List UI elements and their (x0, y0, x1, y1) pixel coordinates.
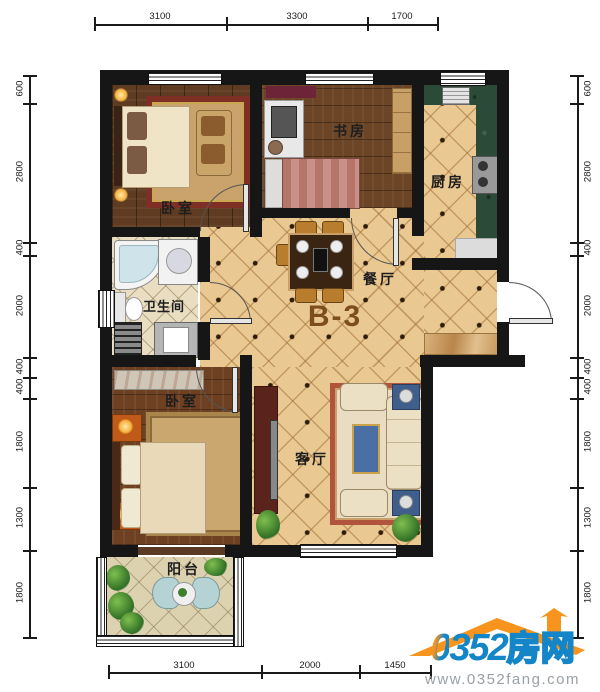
dim-label-right: 2800 (583, 152, 594, 192)
dim-tick (570, 487, 584, 489)
plant-icon (256, 510, 280, 540)
stove-burner (478, 161, 488, 171)
coffee-table (352, 424, 380, 474)
dim-tick (23, 487, 37, 489)
room-label-study: 书房 (310, 121, 390, 141)
room-label-dining: 餐厅 (344, 269, 416, 289)
wall-bottom-seg (395, 545, 433, 557)
balcony-glazing-right (233, 557, 244, 647)
dim-label-top: 1700 (372, 11, 432, 22)
sofa-loveseat (340, 489, 388, 517)
lamp-icon (399, 495, 413, 509)
room-label-kitchen: 厨房 (412, 172, 484, 192)
entry-door-arc (509, 282, 552, 323)
dim-label-left: 1800 (15, 573, 26, 613)
table-centerpiece (313, 248, 328, 272)
radiator-icon (114, 322, 142, 356)
bedroom-bottom-door-leaf (232, 367, 238, 413)
dim-tick (23, 550, 37, 552)
dim-label-left: 600 (15, 69, 26, 109)
wall-entry-spur (420, 355, 525, 367)
dim-tick (437, 17, 439, 31)
dim-label-bottom: 2000 (280, 660, 340, 671)
wall-kitchen-left (412, 85, 424, 236)
plate (296, 240, 309, 253)
dim-label-right: 1800 (583, 422, 594, 462)
study-shelf (266, 86, 316, 98)
wall-bedroom-top-bottom (100, 227, 200, 237)
watermark-logo: 0352房网 www.0352fang.com (405, 608, 600, 692)
room-label-living: 客厅 (276, 449, 348, 469)
study-wardrobe (392, 88, 412, 174)
plate (330, 266, 343, 279)
study-door-leaf (393, 218, 399, 266)
computer-monitor-icon (271, 106, 297, 138)
balcony-table-plant (178, 588, 187, 597)
dim-line-top (94, 24, 438, 26)
plate (296, 266, 309, 279)
room-label-bathroom: 卫生间 (126, 296, 202, 315)
wall-bedroom-study (250, 85, 262, 237)
bench-cushion (201, 144, 225, 164)
dim-label-left: 400 (15, 228, 26, 268)
dim-tick (261, 665, 263, 679)
dim-line-bottom (108, 672, 431, 674)
watermark-url: www.0352fang.com (405, 671, 600, 688)
study-bed (282, 158, 360, 209)
window-living-bottom (300, 544, 397, 558)
bench-cushion (201, 116, 225, 136)
lamp-icon (399, 389, 413, 403)
balcony-door-sill (138, 547, 225, 555)
dim-label-right: 400 (583, 228, 594, 268)
dim-label-right: 400 (583, 367, 594, 407)
dim-label-top: 3300 (267, 11, 327, 22)
wall-lamp-icon (114, 188, 128, 202)
floor-plan-canvas: 卧室 书房 厨房 卫生间 餐厅 B-3 卧室 客厅 阳台 3100 3300 1… (0, 0, 600, 692)
plant-icon (120, 612, 144, 634)
washer-drum (166, 248, 192, 274)
wall-study-bottom (262, 208, 350, 218)
bedroom-bottom-wardrobe (114, 370, 204, 390)
dim-label-left: 1300 (15, 498, 26, 538)
watermark-brand-digits: 352 (449, 627, 506, 669)
room-label-bedroom-top: 卧室 (138, 198, 218, 218)
dim-label-left: 400 (15, 367, 26, 407)
balcony-glazing-left (96, 557, 107, 641)
wall-lamp-icon (114, 88, 128, 102)
dim-tick (94, 17, 96, 31)
dim-label-right: 1300 (583, 498, 594, 538)
dim-tick (226, 17, 228, 31)
dim-label-right: 600 (583, 69, 594, 109)
bedroom-top-door-leaf (243, 184, 249, 232)
dim-tick (23, 637, 37, 639)
pillow (121, 445, 142, 485)
kitchen-cabinet (455, 238, 499, 260)
window-kitchen (440, 71, 486, 86)
pillow (127, 112, 147, 140)
window-bathroom (98, 290, 115, 328)
room-label-balcony: 阳台 (146, 559, 222, 579)
wall-entry-jamb-bottom (497, 322, 509, 355)
bedroom-top-bed-headboard (114, 106, 122, 186)
dim-line-right (577, 75, 579, 637)
wall-bottom-seg (100, 545, 138, 557)
wall-study-jamb (397, 208, 412, 218)
dim-label-right: 1800 (583, 573, 594, 613)
sofa-loveseat (340, 383, 388, 411)
dim-tick (367, 17, 369, 31)
sofa-main (386, 396, 422, 490)
wall-entry-jamb-top (497, 270, 509, 282)
dim-label-top: 3100 (130, 11, 190, 22)
pillow (127, 146, 147, 174)
study-bed-pillow (265, 159, 283, 208)
balcony-glazing-bottom (96, 635, 244, 647)
plant-icon (106, 565, 130, 591)
dim-label-bottom: 3100 (154, 660, 214, 671)
wall-bathroom-right-top (198, 237, 210, 282)
entry-door-leaf (509, 318, 553, 324)
plate (330, 240, 343, 253)
bedroom-bottom-bed (140, 442, 206, 534)
watermark-brand: 0352房网 (405, 626, 600, 671)
dim-label-left: 2800 (15, 152, 26, 192)
pillow (121, 488, 142, 528)
plant-icon (392, 514, 420, 542)
dim-line-left (29, 75, 31, 637)
desk-chair (268, 140, 283, 155)
wall-right-upper (497, 70, 509, 270)
shower-drain (163, 327, 189, 353)
room-label-bedroom-bottom: 卧室 (142, 391, 222, 411)
bathroom-door-leaf (210, 318, 252, 324)
wall-right-lower (421, 367, 433, 557)
dim-label-right: 2000 (583, 286, 594, 326)
wall-bathroom-right-bottom (198, 322, 210, 360)
balcony-chair (192, 577, 220, 609)
wall-bedroom-living (240, 355, 252, 557)
window-bedroom-top (148, 72, 222, 85)
watermark-brand-cn: 房网 (507, 630, 575, 668)
dim-tick (359, 665, 361, 679)
unit-label: B-3 (298, 300, 372, 334)
wall-bathroom-bottom (100, 355, 196, 367)
wall-kitchen-bottom (412, 258, 509, 270)
dim-label-left: 1800 (15, 422, 26, 462)
watermark-brand-zero: 0 (430, 627, 449, 669)
dim-tick (570, 550, 584, 552)
dim-tick (108, 665, 110, 679)
dim-label-left: 2000 (15, 286, 26, 326)
wall-bottom-seg (225, 545, 300, 557)
entry-bench (424, 333, 498, 355)
kitchen-sink-icon (442, 87, 470, 105)
table-lamp-icon (118, 419, 133, 434)
window-study (305, 72, 374, 85)
